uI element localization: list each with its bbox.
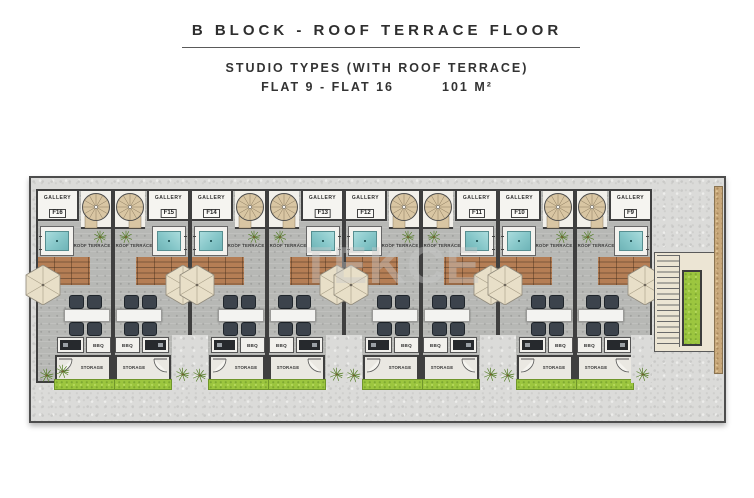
- flat-code-badge: F14: [203, 209, 219, 218]
- bbq-grill: [57, 337, 84, 353]
- jacuzzi-drain-icon: [364, 240, 366, 242]
- flat-code-badge: F12: [357, 209, 373, 218]
- bbq-grill-top: [145, 340, 166, 350]
- bbq-counter: BBQ: [115, 337, 140, 353]
- bbq-grill-top: [299, 340, 320, 350]
- chair: [69, 322, 84, 336]
- spiral-stair-icon: [269, 191, 299, 229]
- spiral-stair-icon: [81, 191, 111, 229]
- chair: [531, 295, 546, 309]
- storage-label: STORAGE: [579, 365, 613, 370]
- spiral-stair-icon: [115, 191, 145, 229]
- jacuzzi-ladder-icon: [184, 236, 187, 250]
- roof-terrace-label: ROOF TERRACE: [535, 243, 573, 248]
- bbq-label: BBQ: [555, 343, 566, 348]
- bbq-grill-top: [368, 340, 389, 350]
- storage-room: STORAGE: [363, 355, 419, 381]
- bbq-label: BBQ: [276, 343, 287, 348]
- chair: [395, 295, 410, 309]
- page-title: B BLOCK - ROOF TERRACE FLOOR: [0, 22, 754, 39]
- plant-icon: [247, 230, 261, 244]
- jacuzzi-ladder-icon: [646, 236, 649, 250]
- bbq-counter: BBQ: [394, 337, 419, 353]
- chair: [241, 295, 256, 309]
- jacuzzi: [152, 226, 186, 256]
- plant-icon: [635, 367, 650, 382]
- bbq-grill: [296, 337, 323, 353]
- jacuzzi-drain-icon: [476, 240, 478, 242]
- lawn-strip: [208, 379, 269, 390]
- spiral-stair: [389, 191, 419, 229]
- chair: [432, 295, 447, 309]
- bbq-grill-top: [60, 340, 81, 350]
- bbq-label: BBQ: [122, 343, 133, 348]
- plant-icon: [401, 230, 415, 244]
- chair: [377, 322, 392, 336]
- bbq-counter: BBQ: [269, 337, 294, 353]
- roof-terrace-label: ROOF TERRACE: [577, 243, 615, 248]
- storage-room: STORAGE: [577, 355, 633, 381]
- jacuzzi-drain-icon: [56, 240, 58, 242]
- bbq-grill-top: [607, 340, 628, 350]
- storage-label: STORAGE: [271, 365, 305, 370]
- plant-icon: [192, 368, 207, 383]
- gallery-label: GALLERY: [500, 195, 539, 201]
- dining-table: [578, 309, 624, 322]
- door-arc-icon: [366, 358, 381, 373]
- umbrella-icon: [25, 265, 61, 305]
- chair: [377, 295, 392, 309]
- bbq-label: BBQ: [93, 343, 104, 348]
- bbq-grill: [519, 337, 546, 353]
- roof-terrace-label: ROOF TERRACE: [227, 243, 265, 248]
- bbq-counter: BBQ: [240, 337, 265, 353]
- spiral-stair-icon: [235, 191, 265, 229]
- roof-terrace-label: ROOF TERRACE: [423, 243, 461, 248]
- chair: [604, 322, 619, 336]
- page: B BLOCK - ROOF TERRACE FLOOR STUDIO TYPE…: [0, 0, 754, 498]
- chair: [450, 322, 465, 336]
- bbq-grill-knob: [158, 343, 163, 347]
- gallery-label: GALLERY: [192, 195, 231, 201]
- chair: [586, 322, 601, 336]
- plant-icon: [500, 368, 515, 383]
- chair: [296, 322, 311, 336]
- umbrella-icon: [179, 265, 215, 305]
- spiral-stair: [81, 191, 111, 229]
- jacuzzi: [502, 226, 536, 256]
- gallery-room: GALLERY F11: [455, 191, 496, 221]
- lawn-strip: [573, 379, 634, 390]
- lawn-strip: [362, 379, 423, 390]
- bbq-counter: BBQ: [548, 337, 573, 353]
- lawn-strip: [111, 379, 172, 390]
- bbq-grill: [365, 337, 392, 353]
- storage-room: STORAGE: [115, 355, 171, 381]
- jacuzzi-ladder-icon: [193, 236, 196, 250]
- plant-icon: [119, 230, 133, 244]
- spiral-stair-icon: [389, 191, 419, 229]
- chair: [87, 295, 102, 309]
- umbrella-icon: [333, 265, 369, 305]
- plant-icon: [346, 368, 361, 383]
- plant-icon: [427, 230, 441, 244]
- gallery-room: GALLERY F12: [346, 191, 387, 221]
- chair: [432, 322, 447, 336]
- bbq-grill-top: [214, 340, 235, 350]
- jacuzzi: [348, 226, 382, 256]
- bbq-grill: [211, 337, 238, 353]
- chair: [549, 295, 564, 309]
- chair: [450, 295, 465, 309]
- storage-label: STORAGE: [75, 365, 109, 370]
- chair: [531, 322, 546, 336]
- bbq-counter: BBQ: [577, 337, 602, 353]
- bbq-grill-top: [453, 340, 474, 350]
- umbrella-icon: [487, 265, 523, 305]
- flat-code-badge: F10: [511, 209, 527, 218]
- spiral-stair: [235, 191, 265, 229]
- dining-table: [270, 309, 316, 322]
- jacuzzi: [614, 226, 648, 256]
- chair: [586, 295, 601, 309]
- spiral-stair-icon: [577, 191, 607, 229]
- bbq-grill-knob: [620, 343, 625, 347]
- title-underline: [182, 47, 580, 48]
- dining-table: [218, 309, 264, 322]
- bbq-label: BBQ: [401, 343, 412, 348]
- chair: [142, 322, 157, 336]
- flat-code-badge: F15: [160, 209, 176, 218]
- lawn-strip: [265, 379, 326, 390]
- storage-room: STORAGE: [517, 355, 573, 381]
- bbq-label: BBQ: [247, 343, 258, 348]
- spiral-stair-icon: [423, 191, 453, 229]
- bbq-grill: [604, 337, 631, 353]
- plant-icon: [581, 230, 595, 244]
- door-arc-icon: [212, 358, 227, 373]
- bbq-label: BBQ: [584, 343, 595, 348]
- flat-code-badge: F11: [469, 209, 485, 218]
- jacuzzi-drain-icon: [322, 240, 324, 242]
- gallery-label: GALLERY: [457, 195, 496, 201]
- chair: [296, 295, 311, 309]
- common-staircase: [654, 252, 718, 352]
- gallery-room: GALLERY F13: [301, 191, 342, 221]
- gallery-label: GALLERY: [346, 195, 385, 201]
- bbq-grill: [450, 337, 477, 353]
- gallery-room: GALLERY F16: [38, 191, 79, 221]
- dining-table: [64, 309, 110, 322]
- jacuzzi-drain-icon: [630, 240, 632, 242]
- spiral-stair: [269, 191, 299, 229]
- bbq-grill-top: [522, 340, 543, 350]
- gallery-label: GALLERY: [149, 195, 188, 201]
- chair: [395, 322, 410, 336]
- chair: [124, 322, 139, 336]
- jacuzzi: [194, 226, 228, 256]
- jacuzzi-drain-icon: [518, 240, 520, 242]
- storage-label: STORAGE: [425, 365, 459, 370]
- gallery-label: GALLERY: [611, 195, 650, 201]
- bbq-grill-knob: [63, 343, 68, 347]
- bbq-label: BBQ: [430, 343, 441, 348]
- dining-table: [424, 309, 470, 322]
- gallery-label: GALLERY: [38, 195, 77, 201]
- chair: [69, 295, 84, 309]
- unit-f16: GALLERY F16 ROOF TERRACE BBQ: [36, 189, 113, 383]
- plant-icon: [93, 230, 107, 244]
- bbq-grill: [142, 337, 169, 353]
- flat-area: 101 M²: [442, 80, 493, 94]
- gallery-label: GALLERY: [303, 195, 342, 201]
- jacuzzi-drain-icon: [168, 240, 170, 242]
- lawn-strip: [54, 379, 115, 390]
- plant-icon: [329, 367, 344, 382]
- door-arc-icon: [153, 358, 168, 373]
- jacuzzi: [40, 226, 74, 256]
- storage-label: STORAGE: [537, 365, 571, 370]
- chair: [549, 322, 564, 336]
- roof-terrace-label: ROOF TERRACE: [381, 243, 419, 248]
- dining-table: [372, 309, 418, 322]
- storage-room: STORAGE: [269, 355, 325, 381]
- jacuzzi-ladder-icon: [347, 236, 350, 250]
- jacuzzi-ladder-icon: [492, 236, 495, 250]
- bbq-counter: BBQ: [423, 337, 448, 353]
- gallery-room: GALLERY F15: [147, 191, 188, 221]
- jacuzzi-drain-icon: [210, 240, 212, 242]
- chair: [278, 322, 293, 336]
- page-subtitle: STUDIO TYPES (WITH ROOF TERRACE): [0, 61, 754, 75]
- plant-icon: [555, 230, 569, 244]
- storage-label: STORAGE: [229, 365, 263, 370]
- jacuzzi: [460, 226, 494, 256]
- chair: [604, 295, 619, 309]
- flats-range: FLAT 9 - FLAT 16: [261, 80, 394, 94]
- staircase-planter: [682, 270, 702, 346]
- plant-icon: [55, 364, 70, 379]
- spiral-stair: [115, 191, 145, 229]
- chair: [223, 322, 238, 336]
- plant-icon: [483, 367, 498, 382]
- floor-plan: GALLERY F16 ROOF TERRACE BBQ: [29, 176, 726, 423]
- storage-room: STORAGE: [423, 355, 479, 381]
- plant-icon: [175, 367, 190, 382]
- gallery-room: GALLERY F10: [500, 191, 541, 221]
- spiral-stair-icon: [543, 191, 573, 229]
- lawn-strip: [419, 379, 480, 390]
- gallery-room: GALLERY F14: [192, 191, 233, 221]
- jacuzzi: [306, 226, 340, 256]
- door-arc-icon: [615, 358, 630, 373]
- chair: [87, 322, 102, 336]
- bbq-grill-knob: [371, 343, 376, 347]
- jacuzzi-ladder-icon: [338, 236, 341, 250]
- roof-terrace-label: ROOF TERRACE: [73, 243, 111, 248]
- flat-code-badge: F16: [49, 209, 65, 218]
- storage-room: STORAGE: [209, 355, 265, 381]
- bbq-grill-knob: [466, 343, 471, 347]
- lawn-strip: [516, 379, 577, 390]
- roof-terrace-label: ROOF TERRACE: [269, 243, 307, 248]
- bbq-grill-knob: [312, 343, 317, 347]
- chair: [142, 295, 157, 309]
- door-arc-icon: [520, 358, 535, 373]
- spiral-stair: [577, 191, 607, 229]
- flat-code-badge: F13: [314, 209, 330, 218]
- door-arc-icon: [307, 358, 322, 373]
- bbq-grill-knob: [217, 343, 222, 347]
- wood-screen-wall: [714, 186, 723, 374]
- gallery-room: GALLERY F9: [609, 191, 650, 221]
- dining-table: [116, 309, 162, 322]
- plant-icon: [273, 230, 287, 244]
- storage-label: STORAGE: [117, 365, 151, 370]
- bbq-counter: BBQ: [86, 337, 111, 353]
- flat-code-badge: F9: [624, 209, 637, 218]
- plant-icon: [39, 368, 54, 383]
- staircase-treads: [657, 255, 680, 347]
- bbq-grill-knob: [525, 343, 530, 347]
- door-arc-icon: [461, 358, 476, 373]
- chair: [278, 295, 293, 309]
- chair: [124, 295, 139, 309]
- flats-info-row: FLAT 9 - FLAT 16 101 M²: [0, 80, 754, 94]
- chair: [223, 295, 238, 309]
- dining-table: [526, 309, 572, 322]
- jacuzzi-ladder-icon: [39, 236, 42, 250]
- storage-label: STORAGE: [383, 365, 417, 370]
- spiral-stair: [423, 191, 453, 229]
- spiral-stair: [543, 191, 573, 229]
- roof-terrace-label: ROOF TERRACE: [115, 243, 153, 248]
- jacuzzi-ladder-icon: [501, 236, 504, 250]
- chair: [241, 322, 256, 336]
